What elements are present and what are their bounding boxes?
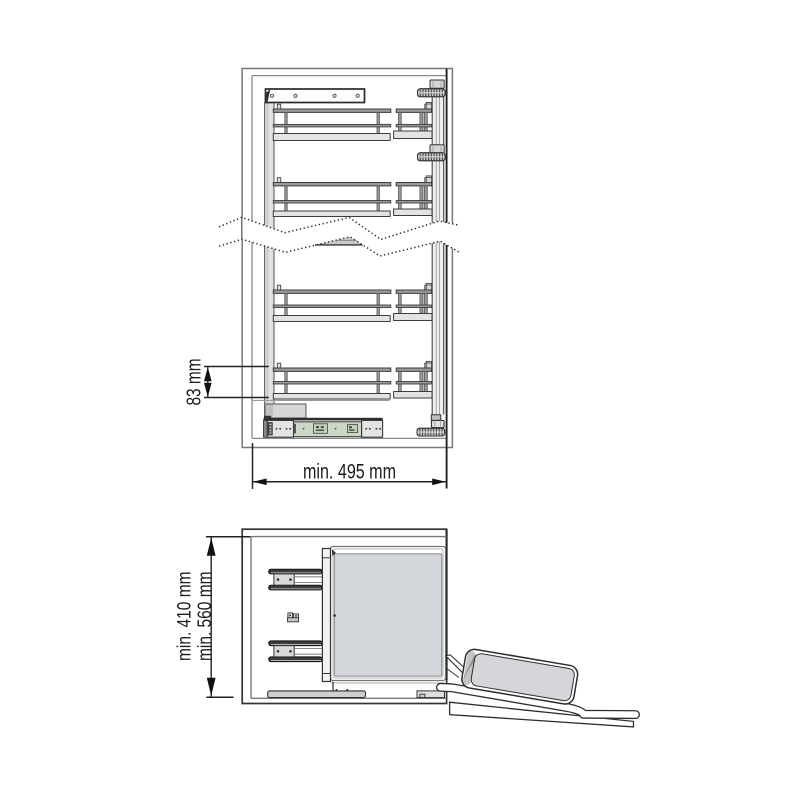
svg-text:83 mm: 83 mm [184,359,206,406]
svg-text:min. 410 mm: min. 410 mm [175,572,196,662]
svg-text:min. 560 mm: min. 560 mm [195,572,216,662]
svg-text:min. 495 mm: min. 495 mm [303,460,396,483]
